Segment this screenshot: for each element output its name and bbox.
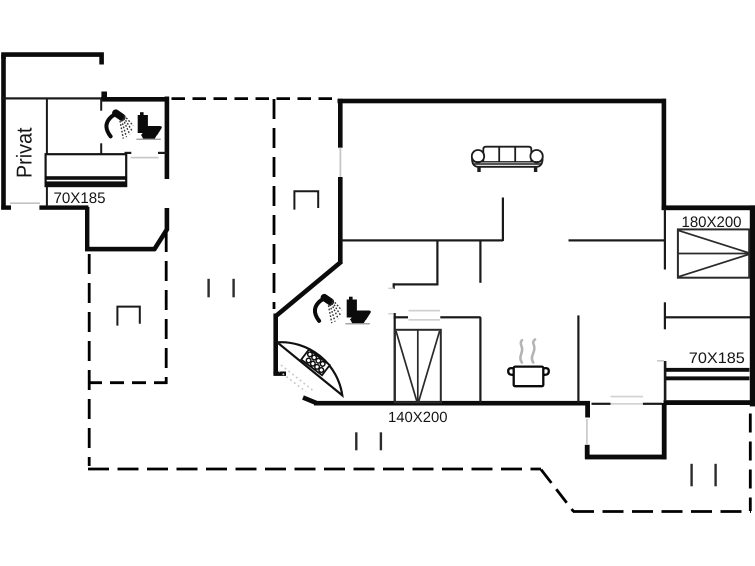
- svg-text:70X185: 70X185: [689, 350, 745, 367]
- svg-text:70X185: 70X185: [54, 190, 106, 207]
- svg-text:140X200: 140X200: [388, 410, 448, 426]
- svg-text:Privat: Privat: [13, 127, 37, 178]
- svg-text:180X200: 180X200: [682, 214, 742, 231]
